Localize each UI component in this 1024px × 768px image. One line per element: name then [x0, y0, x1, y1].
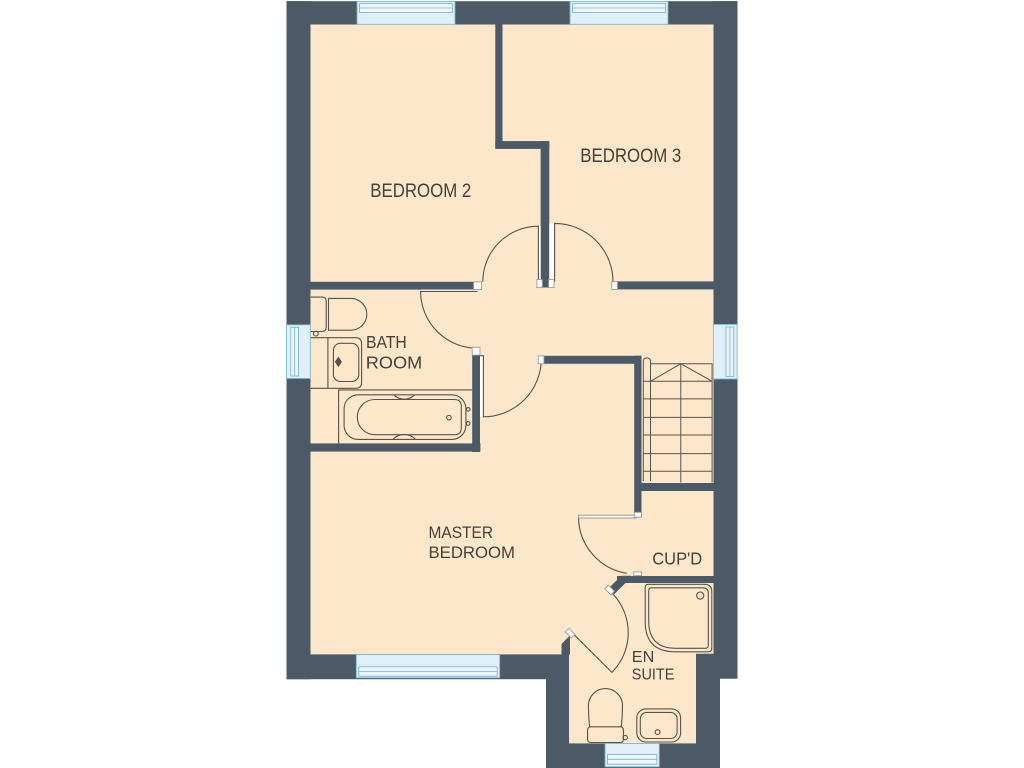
svg-text:EN: EN — [632, 649, 655, 666]
svg-text:BEDROOM 3: BEDROOM 3 — [580, 145, 681, 167]
svg-text:BEDROOM 2: BEDROOM 2 — [370, 180, 471, 202]
svg-text:MASTER: MASTER — [429, 523, 494, 542]
svg-text:CUP'D: CUP'D — [652, 549, 702, 569]
svg-text:BEDROOM: BEDROOM — [429, 543, 516, 562]
svg-text:BATH: BATH — [366, 332, 407, 352]
svg-text:SUITE: SUITE — [632, 666, 675, 683]
svg-text:ROOM: ROOM — [366, 352, 423, 372]
